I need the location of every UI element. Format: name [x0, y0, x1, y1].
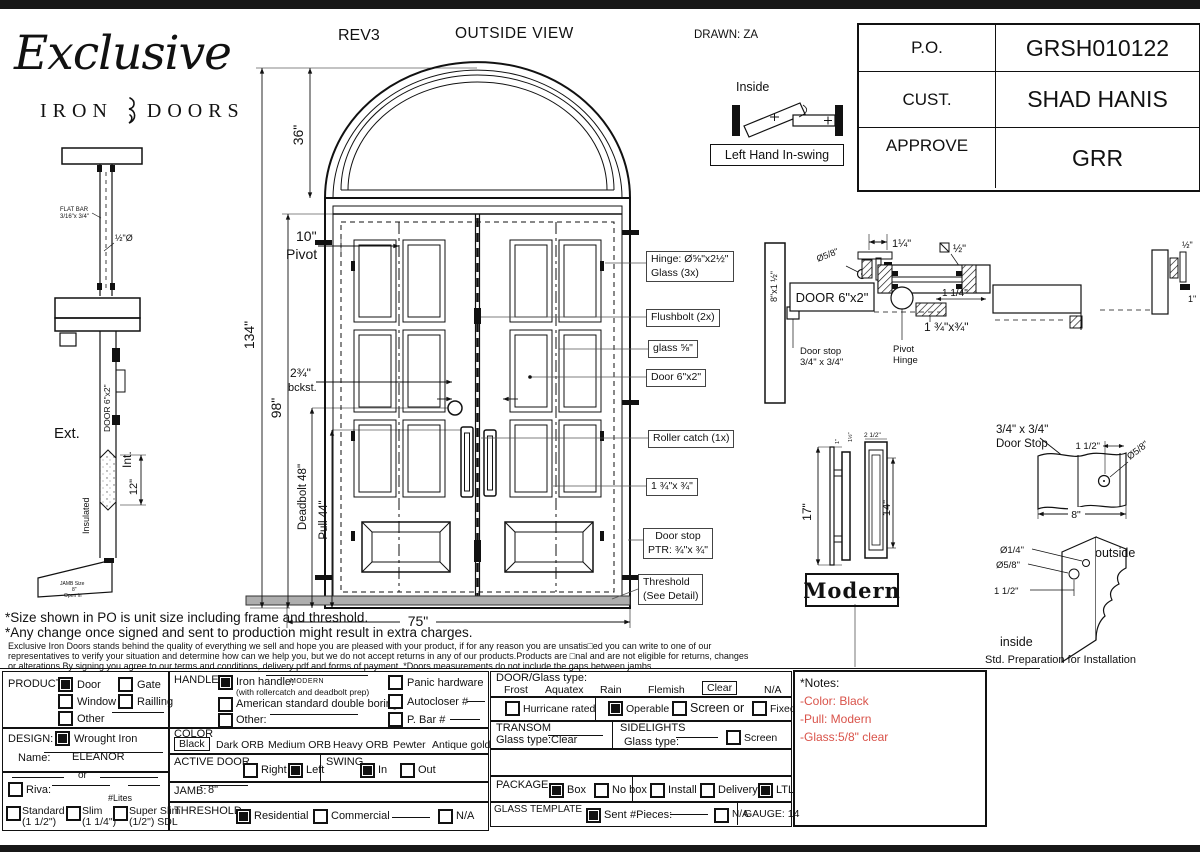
pivot-hinge-label-1: Pivot [893, 344, 914, 355]
american-boring-label: American standard double boring [236, 698, 398, 710]
dim-1: 1" [835, 439, 841, 444]
swing-in-label: In [378, 764, 387, 776]
dim-1-12: 1½" [847, 432, 854, 442]
checkbox-threshold-commercial[interactable] [313, 809, 328, 824]
standard-size: (1 1/2") [22, 816, 56, 828]
glass-option-flemish[interactable]: Flemish [648, 684, 685, 696]
operable-label: Operable [626, 703, 669, 715]
dim-2-12: 2 1/2" [864, 432, 881, 439]
jamb-label: JAMB: [174, 785, 206, 797]
or-rule-right [100, 777, 158, 778]
dim-1-14: 1¼" [892, 238, 911, 250]
sidelight-screen-label: Screen [744, 732, 777, 744]
dim-36: 36" [290, 125, 306, 146]
jamb-input[interactable] [200, 785, 248, 786]
prep-dim-1-12: 1 1/2" [994, 586, 1019, 597]
note-pull: -Pull: Modern [800, 712, 871, 726]
product-door-label: Door [77, 679, 101, 691]
color-option-heavy-orb[interactable]: Heavy ORB [333, 739, 388, 751]
checkbox-hurricane[interactable] [505, 701, 520, 716]
swing-label: SWING [326, 756, 363, 768]
customer-label: CUST. [859, 72, 996, 127]
checkbox-product-railling[interactable] [118, 694, 133, 709]
note-size: *Size shown in PO is unit size including… [5, 610, 368, 625]
checkbox-panic-hardware[interactable] [388, 675, 403, 690]
door-stop-label-2: 3/4" x 3/4" [800, 357, 843, 368]
door-section-label: DOOR 6"x2" [796, 290, 869, 305]
door-glass-label: DOOR/Glass type: [496, 672, 587, 684]
checkbox-standard[interactable] [6, 806, 21, 821]
jamb-section-size: 8"x1 ½" [769, 271, 779, 302]
square-half-label: ½" [953, 243, 966, 255]
handle-label: HANDLE [174, 674, 219, 686]
riva-label: Riva: [26, 784, 51, 796]
flat-bar-size: 3/16"x 3/4" [60, 214, 89, 220]
checkbox-package-nobox[interactable] [594, 783, 609, 798]
inside-label: Inside [736, 80, 769, 94]
color-option-antique-gold[interactable]: Antique gold [432, 739, 490, 751]
threshold-label: THRESHOLD [174, 805, 242, 817]
stop-dia-58: Ø5/8" [1125, 439, 1151, 462]
dim-deadbolt-48: Deadbolt 48" [297, 464, 309, 530]
riva-input-2[interactable] [128, 785, 160, 786]
callout-glass: glass ⅝" [648, 340, 698, 358]
install-label: Install [668, 784, 697, 796]
transom-divider [612, 720, 613, 748]
iron-handle-value[interactable]: MODERN [290, 678, 324, 685]
checkbox-delivery[interactable] [700, 783, 715, 798]
empty-box [490, 748, 792, 777]
screen-or-label: Screen or [690, 701, 744, 715]
pivot-hinge-label-2: Hinge [893, 355, 918, 366]
logo-scroll-icon [122, 96, 138, 126]
notes-title: *Notes: [800, 676, 839, 690]
door-stop-title-2: Door Stop [996, 438, 1048, 450]
terms-line-1: Exclusive Iron Doors stands behind the q… [8, 641, 711, 651]
product-gate-label: Gate [137, 679, 161, 691]
checkbox-american-boring[interactable] [218, 697, 233, 712]
pivot-label: Pivot [286, 246, 317, 262]
checkbox-product-gate[interactable] [118, 677, 133, 692]
checkbox-product-other[interactable] [58, 711, 73, 726]
glass-option-na[interactable]: N/A [764, 684, 782, 696]
dim-17: 17" [800, 503, 814, 521]
drawn-by: DRAWN: ZA [694, 29, 758, 41]
checkbox-threshold-residential[interactable] [236, 809, 251, 824]
table-row: CUST. SHAD HANIS [859, 72, 1199, 128]
checkbox-autocloser[interactable] [388, 694, 403, 709]
edge-dim-half: ½" [1182, 240, 1193, 250]
checkbox-super-slim[interactable] [113, 806, 128, 821]
glass-option-rain[interactable]: Rain [600, 684, 622, 696]
design-name-label: Name: [18, 752, 50, 764]
slim-size: (1 1/4") [82, 816, 116, 828]
glass-option-clear[interactable]: Clear [702, 681, 737, 695]
logo-iron: IRON [40, 100, 113, 123]
door-stop-title-1: 3/4" x 3/4" [996, 424, 1048, 436]
po-value: GRSH010122 [996, 25, 1199, 71]
iron-handle-input[interactable] [266, 675, 368, 676]
note-change: *Any change once signed and sent to prod… [5, 625, 473, 640]
callout-door-stop: Door stop PTR: ¾"x ¾" [643, 528, 713, 559]
color-option-medium-orb[interactable]: Medium ORB [268, 739, 331, 751]
dim-98: 98" [268, 398, 284, 419]
interior-label: Int. [120, 451, 134, 468]
callout-muntin-size: 1 ¾"x ¾" [646, 478, 698, 496]
view-title: OUTSIDE VIEW [455, 25, 574, 43]
callout-threshold-line2: (See Detail) [643, 590, 698, 604]
lites-label: #Lites [108, 793, 132, 803]
active-right-label: Right [261, 764, 287, 776]
callout-hinge-line2: Glass (3x) [651, 267, 729, 281]
product-label: PRODUCT: [8, 678, 64, 690]
stop-dim-1-12: 1 1/2" [1075, 441, 1100, 452]
product-other-label: Other [77, 713, 105, 725]
prep-dia-14: Ø1/4" [1000, 545, 1024, 556]
terms-line-3: or alterations.By signing you agree to o… [8, 661, 651, 671]
backset-label: bckst. [288, 382, 317, 394]
design-name-input[interactable] [44, 752, 163, 753]
insulated-label: Insulated [81, 497, 91, 534]
hurricane-label: Hurricane rated [523, 703, 595, 715]
threshold-commercial-input[interactable] [392, 817, 430, 818]
dim-pull-44: Pull 44" [318, 500, 330, 539]
inside-label: inside [1000, 635, 1033, 649]
sidelights-glass-label: Glass type: [624, 736, 679, 748]
callout-door-stop-line2: PTR: ¾"x ¾" [648, 544, 708, 558]
checkbox-template-sent[interactable] [586, 808, 601, 823]
callout-hinge: Hinge: Ø⅝"x2½" Glass (3x) [646, 251, 734, 282]
flat-bar-label: FLAT BAR [60, 207, 89, 213]
threshold-band [246, 596, 630, 605]
pull-style-badge: Modern [805, 573, 899, 607]
checkbox-ltl[interactable] [758, 783, 773, 798]
threshold-commercial-label: Commercial [331, 810, 390, 822]
gauge-label: GAUGE: 14 [744, 808, 799, 820]
door-elevation: 134" 36" 98" Deadbolt 48" Pull 44" 10" P… [241, 62, 648, 629]
form-top-rule [0, 668, 1040, 669]
transom-glass-input[interactable] [548, 735, 603, 736]
logo-exclusive: Exclusive [14, 26, 231, 81]
or-rule-left [12, 777, 64, 778]
package-nobox-label: No box [612, 784, 647, 796]
exterior-label: Ext. [54, 425, 80, 442]
dim-10: 10" [296, 228, 317, 244]
checkbox-swing-in[interactable] [360, 763, 375, 778]
p-bar-input[interactable] [450, 719, 480, 720]
checkbox-p-bar[interactable] [388, 712, 403, 727]
half-dia-label: ½"Ø [115, 233, 133, 243]
glass-option-frost[interactable]: Frost [504, 684, 528, 696]
active-door-label: ACTIVE DOOR [174, 756, 250, 768]
edge-dim-one: 1" [1188, 294, 1196, 304]
terms-line-2: representatives to verify your situation… [8, 651, 748, 661]
checkbox-product-door[interactable] [58, 677, 73, 692]
door-size-vertical: DOOR 6"x2" [102, 384, 112, 432]
checkbox-active-right[interactable] [243, 763, 258, 778]
swing-diagram [732, 103, 843, 137]
sidelights-label: SIDELIGHTS [620, 722, 685, 734]
checkbox-product-window[interactable] [58, 694, 73, 709]
checkbox-handle-other[interactable] [218, 713, 233, 728]
table-row: APPROVE GRR [859, 128, 1199, 188]
riva-input[interactable] [52, 785, 110, 786]
dim-134: 134" [241, 321, 257, 349]
checkbox-swing-out[interactable] [400, 763, 415, 778]
product-other-input[interactable] [112, 712, 164, 713]
callout-threshold: Threshold (See Detail) [638, 574, 703, 605]
order-table: P.O. GRSH010122 CUST. SHAD HANIS APPROVE… [857, 23, 1200, 192]
jamb-open-note: Open in [64, 593, 82, 599]
checkbox-fixed[interactable] [752, 701, 767, 716]
prep-caption: Std. Preparation for Installation [985, 654, 1136, 666]
approve-label: APPROVE [859, 128, 996, 188]
hinge-dia-label: Ø5/8" [815, 246, 840, 264]
or-label: or [78, 770, 87, 781]
note-glass: -Glass:5/8" clear [800, 730, 888, 744]
checkbox-operable[interactable] [608, 701, 623, 716]
color-option-black[interactable]: Black [174, 737, 210, 751]
package-label: PACKAGE [496, 779, 548, 791]
package-box-label: Box [567, 784, 586, 796]
threshold-na-label: N/A [456, 810, 474, 822]
iron-handle-note: (with rollercatch and deadbolt prep) [236, 687, 369, 697]
pull-handle-detail: 17" 14" 2 1/2" 1" 1½" [800, 432, 896, 565]
template-pieces-label: #Pieces: [630, 809, 672, 821]
prep-dia-58: Ø5/8" [996, 560, 1020, 571]
p-bar-label: P. Bar # [407, 714, 445, 726]
checkbox-screen[interactable] [672, 701, 687, 716]
delivery-label: Delivery [718, 784, 758, 796]
threshold-residential-label: Residential [254, 810, 308, 822]
customer-value: SHAD HANIS [996, 72, 1199, 127]
dim-14: 14" [881, 500, 893, 516]
template-pieces-input[interactable] [670, 814, 708, 815]
template-sent-label: Sent [604, 809, 627, 821]
deadbolt-circle [448, 401, 462, 415]
logo-subtitle: IRON DOORS [40, 96, 245, 126]
checkbox-iron-handle[interactable] [218, 675, 233, 690]
revision-label: REV3 [338, 27, 380, 45]
plan-section-detail: 8"x1 ½" DOOR 6"x2" Ø5/8" 1¼" ½" 1 1/4" 1… [765, 234, 1196, 403]
design-wrought-label: Wrought Iron [74, 733, 137, 745]
color-option-dark-orb[interactable]: Dark ORB [216, 739, 264, 751]
dim-1-34-x-34: 1 ¾"x¾" [924, 320, 969, 334]
outside-label: outside [1095, 546, 1135, 560]
drawing-sheet: 134" 36" 98" Deadbolt 48" Pull 44" 10" P… [0, 0, 1200, 852]
transom-label: TRANSOM [496, 722, 551, 734]
dim-1-14-b: 1 1/4" [942, 288, 968, 299]
transom-glass-label: Glass type: [496, 734, 551, 746]
checkbox-threshold-na[interactable] [438, 809, 453, 824]
glass-template-label: GLASS TEMPLATE [494, 804, 582, 815]
design-label: DESIGN: [8, 733, 53, 745]
bottom-border-bar [0, 845, 1200, 852]
checkbox-template-na[interactable] [714, 808, 729, 823]
fixed-label: Fixed [770, 703, 796, 715]
note-color: -Color: Black [800, 694, 869, 708]
door-stop-detail: 3/4" x 3/4" Door Stop 1 1/2" Ø5/8" 8" Ø1… [985, 424, 1151, 666]
callout-threshold-line1: Threshold [643, 576, 698, 590]
checkbox-package-box[interactable] [549, 783, 564, 798]
po-label: P.O. [859, 25, 996, 71]
door-stop-label-1: Door stop [800, 346, 841, 357]
swing-out-label: Out [418, 764, 436, 776]
handle-other-input[interactable] [270, 714, 358, 715]
logo-doors: DOORS [147, 100, 245, 123]
autocloser-input[interactable] [467, 701, 485, 702]
handle-other-label: Other: [236, 714, 267, 726]
checkbox-riva[interactable] [8, 782, 23, 797]
ltl-label: LTL [776, 784, 794, 796]
checkbox-slim[interactable] [66, 806, 81, 821]
swing-caption: Left Hand In-swing [710, 144, 844, 166]
product-window-label: Window [77, 696, 116, 708]
callout-roller-catch: Roller catch (1x) [648, 430, 734, 448]
approve-value: GRR [996, 128, 1199, 188]
autocloser-label: Autocloser # [407, 696, 468, 708]
dim-backset: 2¾" [290, 366, 311, 380]
panic-hardware-label: Panic hardware [407, 677, 483, 689]
active-left-label: Left [306, 764, 324, 776]
checkbox-design-wrought-iron[interactable] [55, 731, 70, 746]
callout-door-size: Door 6"x2" [646, 369, 706, 387]
checkbox-sidelight-screen[interactable] [726, 730, 741, 745]
table-row: P.O. GRSH010122 [859, 25, 1199, 72]
stop-dim-8: 8" [1071, 509, 1081, 521]
glass-option-aquatex[interactable]: Aquatex [545, 684, 584, 696]
callout-hinge-line1: Hinge: Ø⅝"x2½" [651, 253, 729, 267]
sidelights-glass-input[interactable] [676, 737, 718, 738]
color-option-pewter[interactable]: Pewter [393, 739, 426, 751]
checkbox-install[interactable] [650, 783, 665, 798]
callout-flushbolt: Flushbolt (2x) [646, 309, 720, 327]
left-section-detail: FLAT BAR 3/16"x 3/4" ½"Ø DOOR 6"x2" Ext.… [38, 148, 146, 599]
pull-handles [448, 401, 496, 497]
callout-door-stop-line1: Door stop [648, 530, 708, 544]
dim-12: 12" [128, 479, 140, 495]
checkbox-active-left[interactable] [288, 763, 303, 778]
